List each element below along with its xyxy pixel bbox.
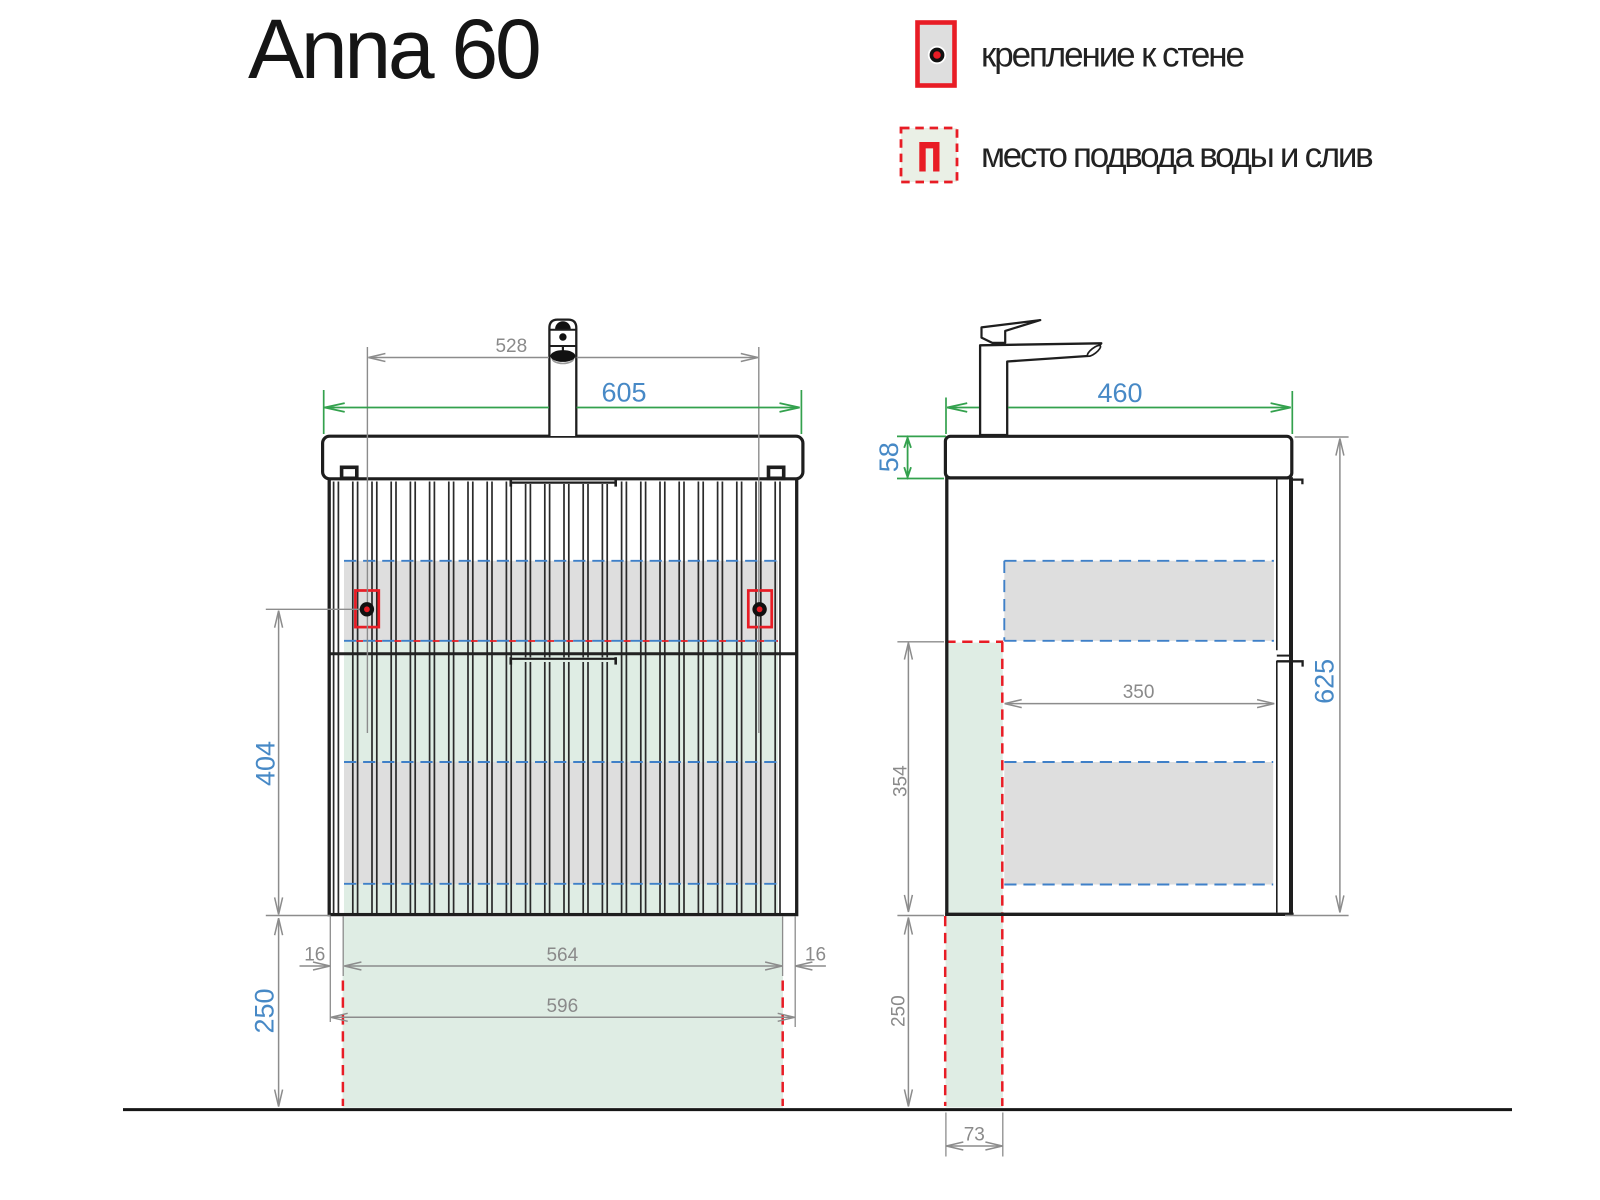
svg-text:596: 596 <box>546 996 578 1017</box>
svg-text:73: 73 <box>964 1125 985 1146</box>
svg-text:крепление к стене: крепление к стене <box>981 36 1244 75</box>
svg-text:460: 460 <box>1097 378 1142 408</box>
svg-text:250: 250 <box>889 995 910 1027</box>
svg-text:564: 564 <box>546 945 578 966</box>
svg-text:625: 625 <box>1310 659 1340 704</box>
svg-text:605: 605 <box>601 378 646 408</box>
svg-text:404: 404 <box>251 741 281 786</box>
svg-text:16: 16 <box>805 945 826 966</box>
svg-text:место подвода воды и слив: место подвода воды и слив <box>981 136 1373 175</box>
svg-text:354: 354 <box>891 765 912 797</box>
svg-text:16: 16 <box>304 945 325 966</box>
svg-text:350: 350 <box>1123 682 1155 703</box>
svg-text:58: 58 <box>874 442 904 472</box>
svg-text:Anna 60: Anna 60 <box>248 2 539 96</box>
svg-text:528: 528 <box>495 336 527 357</box>
svg-text:250: 250 <box>250 988 280 1033</box>
